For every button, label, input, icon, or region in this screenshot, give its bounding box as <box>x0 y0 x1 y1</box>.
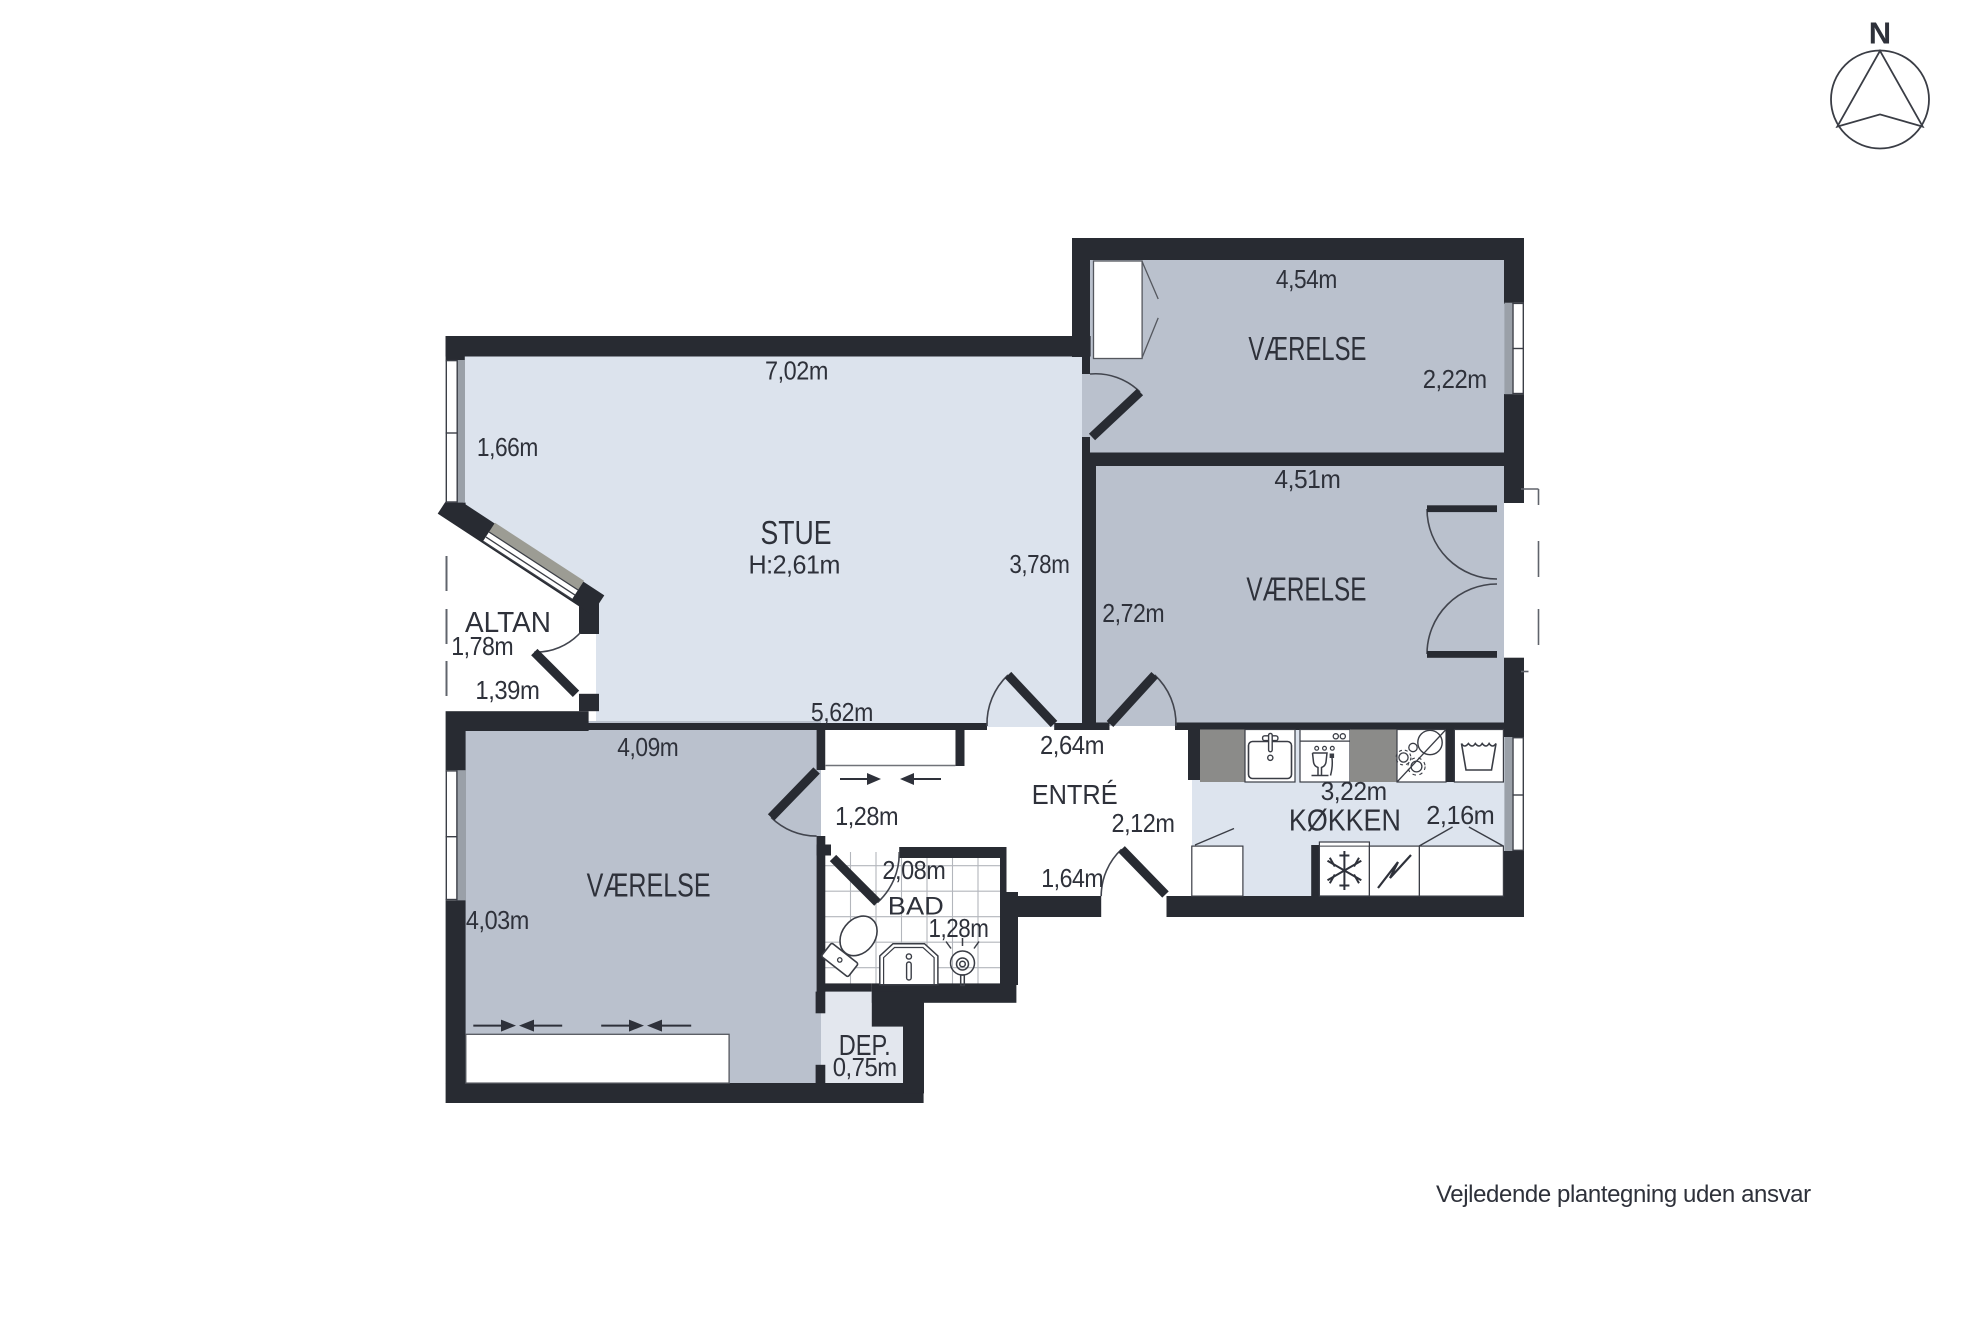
svg-text:VÆRELSE: VÆRELSE <box>587 867 711 904</box>
svg-text:5,62m: 5,62m <box>811 697 873 727</box>
svg-text:7,02m: 7,02m <box>765 356 828 386</box>
svg-text:STUE: STUE <box>761 514 832 551</box>
svg-text:KØKKEN: KØKKEN <box>1289 803 1401 838</box>
svg-text:0,75m: 0,75m <box>833 1052 897 1082</box>
svg-text:N: N <box>1869 16 1891 51</box>
svg-text:2,08m: 2,08m <box>882 855 945 885</box>
svg-text:H:2,61m: H:2,61m <box>748 550 840 580</box>
svg-text:1,28m: 1,28m <box>929 913 989 943</box>
svg-text:1,78m: 1,78m <box>451 631 513 661</box>
svg-text:3,22m: 3,22m <box>1321 776 1387 806</box>
svg-text:VÆRELSE: VÆRELSE <box>1248 330 1366 367</box>
svg-text:4,09m: 4,09m <box>617 732 678 762</box>
svg-text:Vejledende plantegning uden an: Vejledende plantegning uden ansvar <box>1436 1181 1811 1208</box>
svg-text:1,66m: 1,66m <box>477 432 538 462</box>
svg-text:3,78m: 3,78m <box>1009 549 1069 579</box>
svg-text:4,03m: 4,03m <box>466 905 529 935</box>
svg-text:1,39m: 1,39m <box>475 675 539 705</box>
svg-text:2,16m: 2,16m <box>1426 800 1494 830</box>
svg-text:4,51m: 4,51m <box>1274 464 1340 494</box>
svg-text:2,64m: 2,64m <box>1040 730 1104 760</box>
svg-text:ENTRÉ: ENTRÉ <box>1032 779 1118 810</box>
svg-text:VÆRELSE: VÆRELSE <box>1246 571 1366 608</box>
svg-text:2,22m: 2,22m <box>1423 364 1487 394</box>
svg-text:1,64m: 1,64m <box>1041 863 1103 893</box>
svg-text:4,54m: 4,54m <box>1276 264 1337 294</box>
svg-text:2,12m: 2,12m <box>1112 808 1175 838</box>
svg-text:2,72m: 2,72m <box>1102 598 1164 628</box>
svg-text:1,28m: 1,28m <box>835 801 898 831</box>
